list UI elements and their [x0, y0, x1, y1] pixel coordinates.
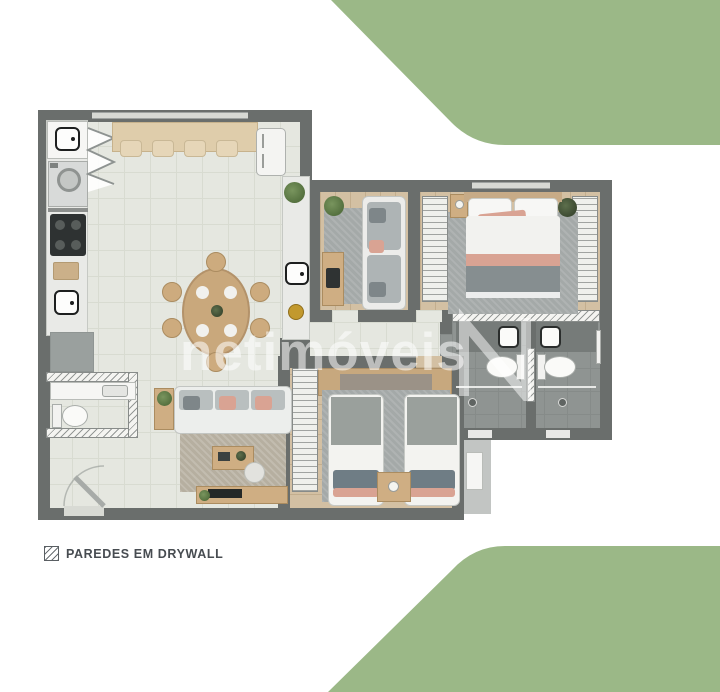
- bed-sheet: [466, 216, 560, 256]
- dining-chair: [250, 282, 270, 302]
- legend: PAREDES EM DRYWALL: [44, 546, 223, 561]
- toilet-tank: [52, 404, 62, 428]
- washer-panel: [50, 163, 58, 168]
- bed-foot: [466, 292, 560, 298]
- tv-icon: [208, 489, 242, 498]
- throw-pillow: [183, 396, 200, 410]
- lamp-icon: [388, 481, 399, 492]
- single-bed: [328, 394, 384, 506]
- dining-chair: [162, 318, 182, 338]
- table-centerpiece-icon: [211, 305, 223, 317]
- entry-door: [466, 452, 483, 490]
- fridge-handle-icon: [262, 154, 264, 168]
- kitchen-sink-icon: [54, 290, 79, 315]
- cutting-board: [53, 262, 79, 280]
- accent-pillow: [333, 488, 379, 497]
- dining-chair: [206, 252, 226, 272]
- legend-label: PAREDES EM DRYWALL: [66, 547, 223, 561]
- netimoveis-n-logo-icon: [452, 306, 542, 401]
- bathroom-sink-icon: [102, 385, 128, 397]
- laptop-icon: [326, 268, 340, 288]
- drywall-hatch-square-icon: [44, 546, 59, 561]
- bar-stool: [216, 140, 238, 157]
- potted-plant-icon: [324, 196, 344, 216]
- throw-pillow: [219, 396, 236, 410]
- wall-bathrooms-bottom: [440, 428, 612, 440]
- single-bed: [404, 394, 460, 506]
- throw-pillow: [255, 396, 272, 410]
- dining-chair: [162, 282, 182, 302]
- throw-pillow: [369, 208, 386, 223]
- toilet-bowl: [544, 356, 576, 378]
- shower-box: [50, 332, 94, 372]
- wall-bedrooms-top: [300, 180, 612, 192]
- entry-door-swing-icon: [62, 464, 106, 508]
- wall-office-master: [408, 192, 420, 322]
- counter-divider-line: [48, 208, 88, 212]
- fruit-bowl-icon: [288, 304, 304, 320]
- bar-stool: [120, 140, 142, 157]
- burner-icon: [55, 220, 65, 230]
- fridge: [256, 128, 286, 176]
- shower-drain-icon: [558, 398, 567, 407]
- bed-blanket-gray: [331, 397, 381, 445]
- drywall-bathroom-left-2: [46, 428, 138, 438]
- wardrobe-closet: [422, 196, 448, 302]
- floor-plan-canvas: netimóveis PAREDES EM DRYWALL: [0, 0, 720, 692]
- burner-icon: [55, 240, 65, 250]
- green-bottom-right-shape: [328, 546, 720, 692]
- bar-stool: [184, 140, 206, 157]
- bar-stool: [152, 140, 174, 157]
- drywall-bathroom-left-1: [46, 372, 138, 382]
- potted-plant-icon: [157, 391, 172, 406]
- potted-plant-icon: [199, 490, 210, 501]
- burner-icon: [71, 240, 81, 250]
- burner-icon: [71, 220, 81, 230]
- bathroom-threshold: [546, 430, 570, 438]
- bathroom-threshold: [468, 430, 492, 438]
- cooktop: [50, 214, 86, 256]
- pillow: [409, 470, 455, 490]
- kitchen-window: [92, 112, 248, 119]
- pillow: [333, 470, 379, 490]
- shower-glass-line: [538, 386, 596, 388]
- master-bedroom-window: [472, 182, 550, 189]
- master-door-opening: [416, 310, 442, 322]
- netimoveis-watermark-text: netimóveis: [180, 326, 467, 379]
- wardrobe-closet: [292, 368, 318, 492]
- plate-icon: [224, 286, 237, 299]
- bed-blanket-gray: [407, 397, 457, 445]
- washer-door-icon: [57, 168, 81, 192]
- green-top-right-shape: [331, 0, 720, 145]
- double-bed: [464, 192, 562, 298]
- toilet-bowl: [62, 405, 88, 427]
- towel-bar-icon: [596, 330, 601, 364]
- table-plant-icon: [236, 451, 246, 461]
- laundry-sink-icon: [55, 127, 80, 151]
- office-door-opening: [332, 310, 358, 322]
- plate-icon: [196, 286, 209, 299]
- ottoman: [244, 462, 265, 483]
- books-icon: [218, 452, 230, 461]
- bed-blanket-gray: [466, 266, 560, 292]
- lamp-icon: [455, 200, 464, 209]
- accent-pillow: [409, 488, 455, 497]
- wall-right-outer: [600, 180, 612, 440]
- throw-pillow: [369, 282, 386, 297]
- potted-plant-icon: [284, 182, 305, 203]
- bed-blanket-salmon: [466, 254, 560, 266]
- peninsula-sink-icon: [285, 262, 309, 285]
- bathroom-sink-icon: [540, 326, 561, 348]
- throw-pillow: [369, 240, 384, 253]
- fridge-handle-icon: [262, 134, 264, 148]
